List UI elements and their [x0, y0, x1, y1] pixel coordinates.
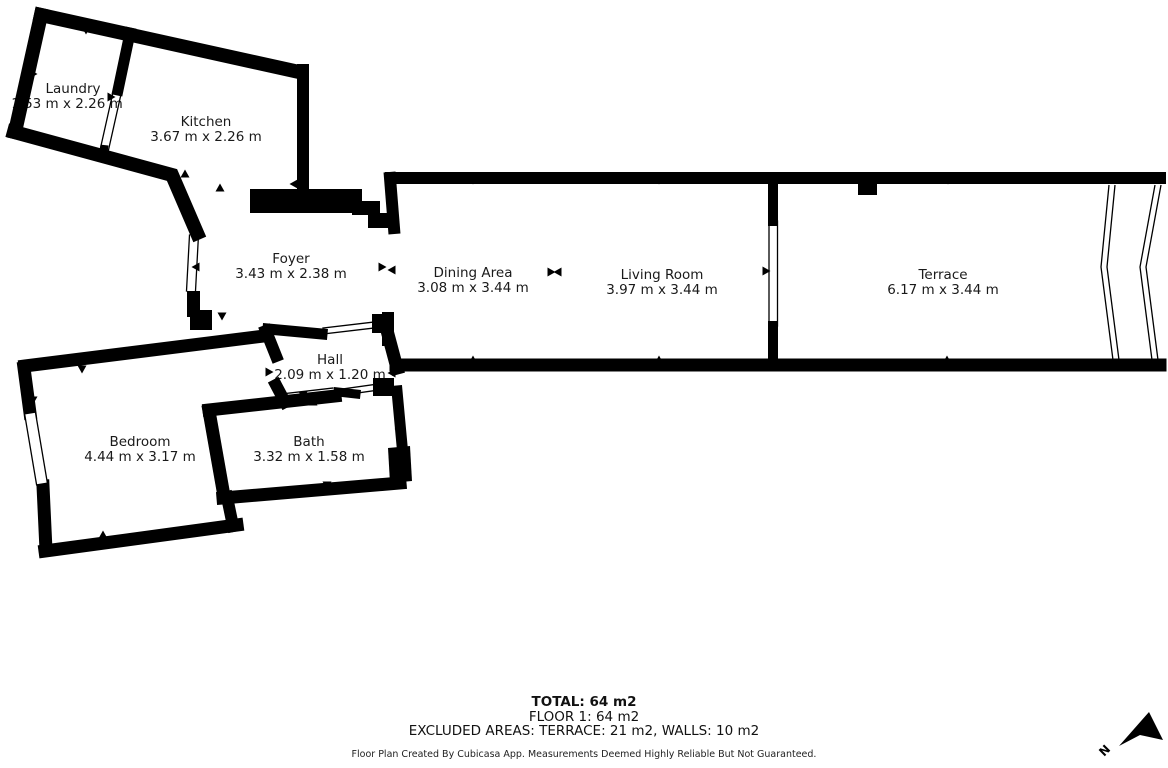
room-label-terrace: Terrace 6.17 m x 3.44 m	[868, 268, 1018, 298]
room-dims: 3.32 m x 1.58 m	[234, 450, 384, 465]
room-labels-layer: Laundry 1.53 m x 2.26 m Kitchen 3.67 m x…	[0, 0, 1168, 768]
room-label-foyer: Foyer 3.43 m x 2.38 m	[216, 252, 366, 282]
room-label-dining-area: Dining Area 3.08 m x 3.44 m	[398, 266, 548, 296]
room-name: Foyer	[216, 252, 366, 267]
room-label-hall: Hall 2.09 m x 1.20 m	[255, 353, 405, 383]
excluded-areas-text: EXCLUDED AREAS: TERRACE: 21 m2, WALLS: 1…	[0, 724, 1168, 739]
room-label-kitchen: Kitchen 3.67 m x 2.26 m	[131, 115, 281, 145]
room-dims: 3.67 m x 2.26 m	[131, 130, 281, 145]
room-dims: 6.17 m x 3.44 m	[868, 283, 1018, 298]
room-name: Hall	[255, 353, 405, 368]
room-name: Living Room	[587, 268, 737, 283]
room-label-bath: Bath 3.32 m x 1.58 m	[234, 435, 384, 465]
room-name: Laundry	[0, 82, 148, 97]
room-dims: 3.97 m x 3.44 m	[587, 283, 737, 298]
room-label-bedroom: Bedroom 4.44 m x 3.17 m	[65, 435, 215, 465]
floor-plan-page: Laundry 1.53 m x 2.26 m Kitchen 3.67 m x…	[0, 0, 1168, 768]
room-name: Terrace	[868, 268, 1018, 283]
total-area-text: TOTAL: 64 m2	[0, 695, 1168, 710]
room-dims: 4.44 m x 3.17 m	[65, 450, 215, 465]
room-name: Bath	[234, 435, 384, 450]
room-name: Dining Area	[398, 266, 548, 281]
room-dims: 3.08 m x 3.44 m	[398, 281, 548, 296]
room-name: Bedroom	[65, 435, 215, 450]
credit-text: Floor Plan Created By Cubicasa App. Meas…	[0, 749, 1168, 760]
room-name: Kitchen	[131, 115, 281, 130]
room-dims: 1.53 m x 2.26 m	[0, 97, 148, 112]
room-dims: 3.43 m x 2.38 m	[216, 267, 366, 282]
room-dims: 2.09 m x 1.20 m	[255, 368, 405, 383]
room-label-laundry: Laundry 1.53 m x 2.26 m	[0, 82, 148, 112]
room-label-living-room: Living Room 3.97 m x 3.44 m	[587, 268, 737, 298]
